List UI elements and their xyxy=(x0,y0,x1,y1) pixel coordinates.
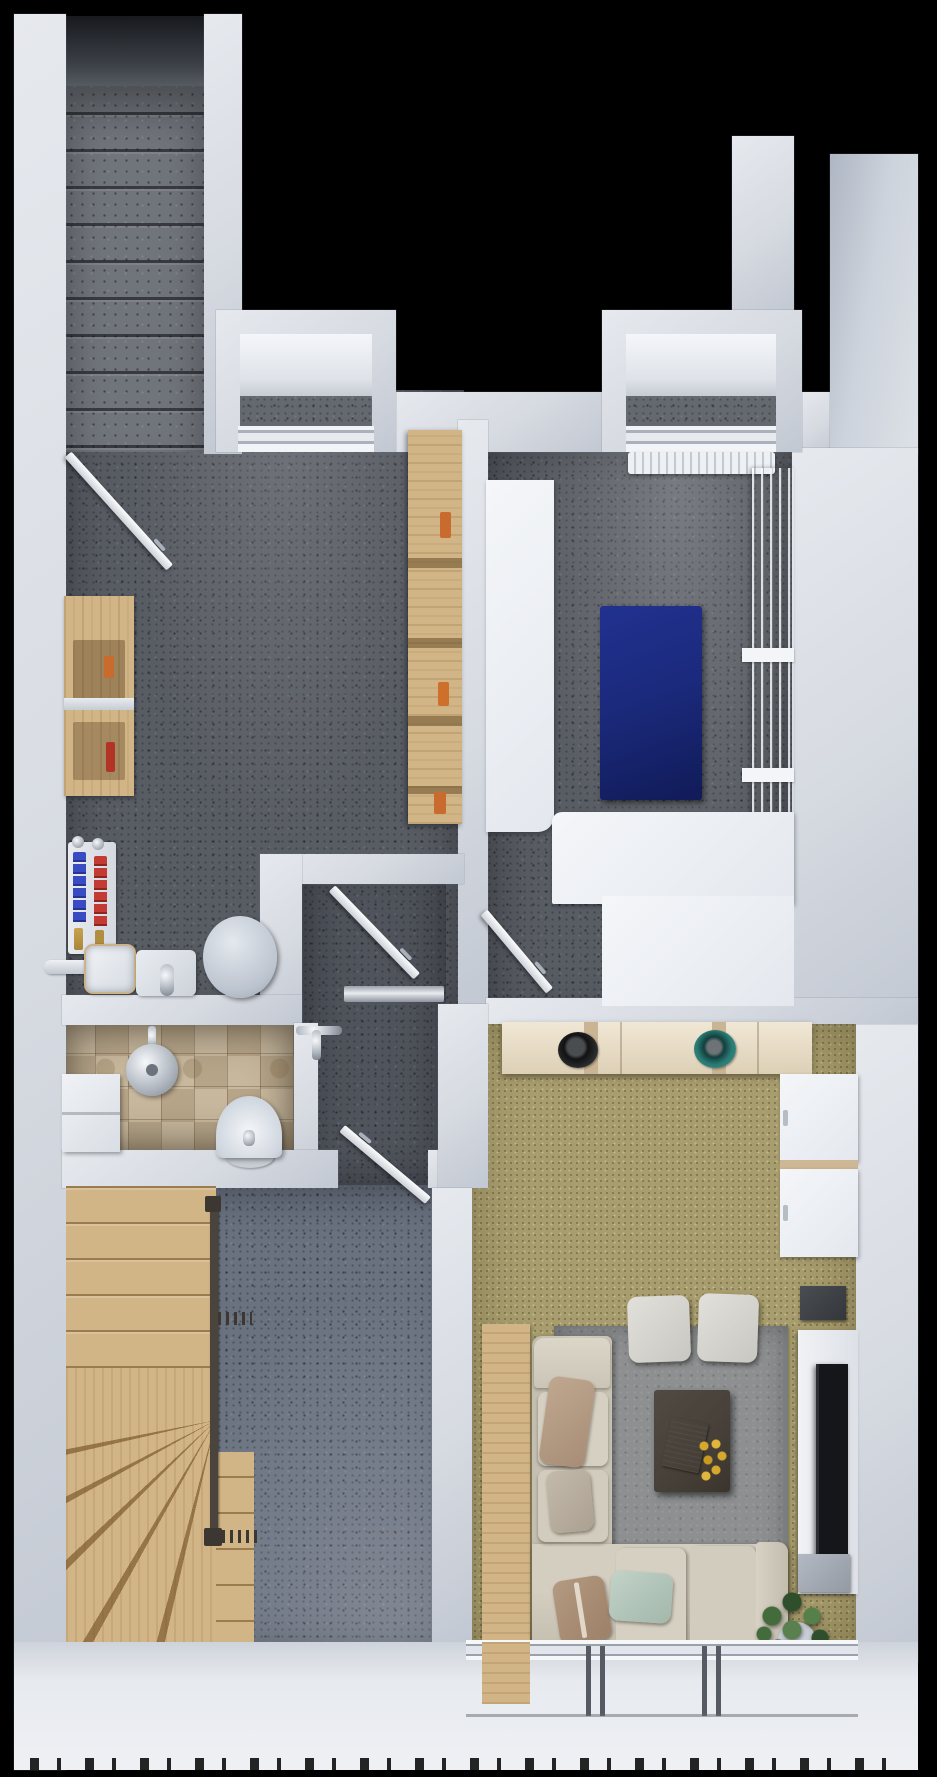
corner-bench-white-a xyxy=(552,812,794,904)
glazing-mullion xyxy=(586,1646,591,1716)
north-wall-column xyxy=(732,136,794,312)
corner-bench-white-b xyxy=(602,896,794,1006)
wooden-shelving-unit xyxy=(408,430,462,824)
pillow-gray-left xyxy=(545,1468,594,1534)
living-room-right-wall xyxy=(856,1022,918,1662)
sofa-seat-cushion-2 xyxy=(690,1546,756,1650)
round-water-heater xyxy=(203,916,277,998)
pillow-mint xyxy=(608,1570,673,1624)
storage-south-wall xyxy=(62,995,302,1025)
shelf-divider-1 xyxy=(408,558,462,568)
glazing-mullion xyxy=(702,1646,707,1716)
shelf-item-orange-1 xyxy=(440,512,451,538)
wooden-stair-lower-run xyxy=(216,1452,254,1658)
glazing-mullion xyxy=(716,1646,721,1716)
white-locker-row xyxy=(752,468,794,816)
heating-manifold xyxy=(68,842,116,954)
brass-valve-1 xyxy=(74,928,83,950)
baluster-fence-upper xyxy=(218,1312,252,1325)
cistern-pipe xyxy=(160,964,174,996)
shelf-divider-2 xyxy=(408,638,462,648)
workbench-shelf-gap2 xyxy=(73,722,125,780)
cabinet-handle xyxy=(783,1110,788,1126)
cabinet-wood-trim xyxy=(780,1160,858,1169)
flat-tv xyxy=(816,1364,848,1558)
render-cut-dashes-bottom xyxy=(30,1758,910,1770)
light-well-left-window-frame xyxy=(238,426,374,452)
light-well-right-niche xyxy=(626,334,776,398)
bathroom-step-bench xyxy=(62,1074,120,1152)
wooden-stair-straight-flight xyxy=(66,1186,216,1368)
stair-handrail xyxy=(210,1204,218,1538)
blue-exercise-mat xyxy=(600,606,702,800)
utility-sink xyxy=(84,944,136,994)
washbasin-tap xyxy=(243,1130,255,1146)
pillow-stripe xyxy=(574,1582,588,1638)
shower-head xyxy=(126,1044,178,1096)
shelf-item-orange-2 xyxy=(438,682,449,706)
workbench-tool-orange xyxy=(104,656,114,678)
light-well-left-floor xyxy=(240,396,372,428)
newel-post-bottom xyxy=(204,1528,222,1546)
wall-cabinet-white-1 xyxy=(780,1074,858,1162)
teal-decor-bowl xyxy=(694,1030,736,1068)
shelf-item-orange-3 xyxy=(434,792,446,814)
spine-wall-lower xyxy=(438,1004,488,1188)
locker-separator-2 xyxy=(742,768,794,782)
sideboard-seam xyxy=(620,1022,622,1074)
light-well-left-niche xyxy=(240,334,372,398)
stair-top-landing-shadow xyxy=(66,16,204,86)
concrete-stair-treads xyxy=(66,78,204,452)
exterior-wall-right-top xyxy=(830,154,918,454)
light-well-right-floor xyxy=(626,396,776,428)
bathroom-south-wall xyxy=(62,1150,338,1188)
ottoman-2 xyxy=(697,1293,759,1363)
wooden-sideboard-extension xyxy=(482,1642,530,1704)
manifold-cap-1 xyxy=(72,836,84,848)
terrace-apron xyxy=(14,1642,918,1770)
glazing-mullion xyxy=(600,1646,605,1716)
workbench-shelf-gap xyxy=(73,640,125,700)
cistern-box xyxy=(136,950,196,996)
exterior-wall-left xyxy=(14,14,66,1770)
pillow-brown-striped xyxy=(551,1574,612,1645)
sideboard-seam xyxy=(757,1022,759,1074)
workbench-rail xyxy=(64,698,134,710)
manifold-red-valves xyxy=(94,856,107,928)
light-well-right-window-frame xyxy=(626,426,776,452)
wooden-stair-winders xyxy=(66,1368,216,1658)
coffee-table xyxy=(654,1390,730,1492)
stair-hall-right-wall xyxy=(432,1188,472,1644)
mixer-tap-drop xyxy=(312,1030,321,1060)
dark-wall-shelf xyxy=(800,1286,846,1320)
cream-sideboard xyxy=(502,1022,812,1074)
cabinet-handle xyxy=(783,1205,788,1221)
exterior-wall-right-band xyxy=(792,448,918,1024)
bench-step-line xyxy=(62,1112,120,1115)
shelf-divider-3 xyxy=(408,716,462,726)
tall-white-cabinet xyxy=(486,480,554,832)
manifold-blue-valves xyxy=(73,852,86,924)
newel-post-top xyxy=(205,1196,221,1212)
yellow-flower-bouquet xyxy=(698,1438,728,1486)
locker-separator-1 xyxy=(742,648,794,662)
black-decor-bowl xyxy=(558,1032,598,1068)
terrace-groove-line xyxy=(466,1714,858,1717)
wooden-workbench xyxy=(64,596,134,796)
baluster-fence-lower xyxy=(222,1530,260,1543)
floorplan-render xyxy=(0,0,937,1777)
hallway-floor xyxy=(302,856,446,1188)
shower-head-center xyxy=(146,1064,158,1076)
workbench-tool-red xyxy=(106,742,115,772)
manifold-cap-2 xyxy=(92,838,104,850)
wall-cabinet-white-2 xyxy=(780,1169,858,1257)
ottoman-1 xyxy=(627,1295,691,1363)
metal-threshold xyxy=(344,986,444,1002)
